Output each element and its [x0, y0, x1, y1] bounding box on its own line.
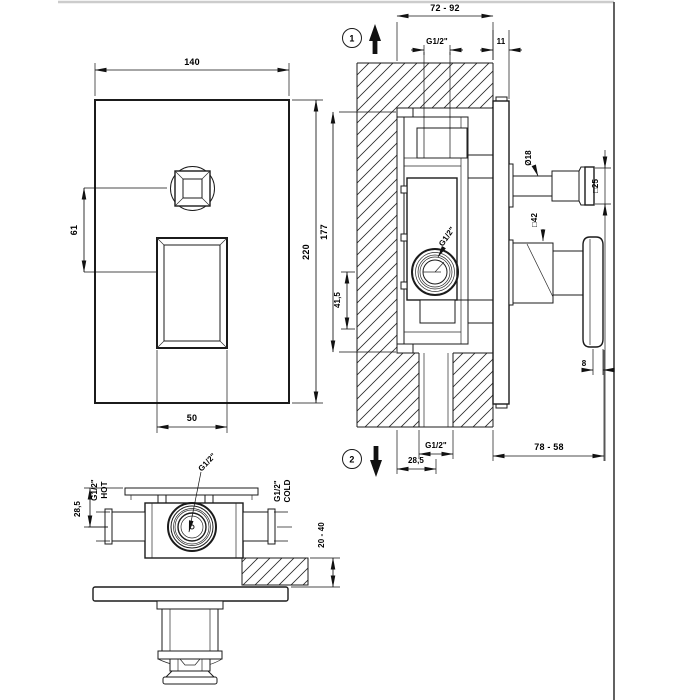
- dim-inlet-offset-section: 28,5: [397, 430, 436, 474]
- dim-front-height: 220: [292, 100, 323, 403]
- svg-text:78 - 58: 78 - 58: [534, 442, 563, 452]
- front-view: 140 220 61 50: [69, 57, 323, 433]
- lever-handle-front: [157, 238, 227, 348]
- arrow-up-icon: [369, 24, 381, 54]
- svg-text:G1/2": G1/2": [426, 37, 448, 46]
- dim-stem-diameter: Ø18: [524, 150, 538, 176]
- svg-text:41,5: 41,5: [333, 292, 342, 308]
- dim-outlet-offset: 41,5: [333, 272, 355, 329]
- svg-text:177: 177: [319, 224, 329, 240]
- trim-plate-top-view: [93, 587, 288, 601]
- trim-plate-section: [493, 97, 509, 408]
- marker-2-label: 2: [349, 455, 354, 465]
- svg-text:HOT: HOT: [100, 481, 109, 498]
- lever-handle-section: [509, 237, 603, 347]
- box-flange-top: [125, 488, 258, 503]
- drawing-sheet: 140 220 61 50: [0, 0, 700, 700]
- dim-front-width: 140: [95, 57, 289, 96]
- top-outlet-port: [417, 128, 467, 158]
- dim-depth-range-top: 72 - 92: [397, 3, 493, 61]
- svg-text:COLD: COLD: [283, 479, 292, 502]
- svg-text:□25: □25: [591, 179, 600, 193]
- dim-outlet-bottom: G1/2": [419, 430, 453, 459]
- svg-text:G1/2": G1/2": [90, 479, 99, 501]
- dim-paddle-thickness: 8: [582, 349, 614, 375]
- dim-label-50: 50: [187, 413, 197, 423]
- svg-text:11: 11: [497, 37, 506, 46]
- svg-text:28,5: 28,5: [73, 501, 82, 517]
- diverter-button-section: [509, 164, 594, 207]
- svg-text:72 - 92: 72 - 92: [430, 3, 459, 13]
- section-view: 1 2 72 - 92 G1/2" 11 177: [319, 3, 614, 477]
- svg-text:G1/2": G1/2": [273, 480, 282, 502]
- label-cold-inlet: G1/2" COLD: [273, 479, 292, 541]
- dim-label-61: 61: [69, 225, 79, 235]
- inlet-pipe-cold: [243, 509, 292, 544]
- technical-drawing: 140 220 61 50: [0, 0, 700, 700]
- valve-body-top: [145, 503, 243, 558]
- diverter-button-front: [171, 167, 215, 211]
- bottom-view: 28,5 G1/2" HOT G1/2" COLD G1/2" 20 - 40: [73, 451, 340, 684]
- arrow-down-icon: [370, 446, 382, 477]
- svg-text:G1/2": G1/2": [197, 451, 218, 473]
- dim-base-square: □42: [530, 213, 543, 241]
- dim-label-220: 220: [301, 244, 311, 260]
- svg-text:20 - 40: 20 - 40: [317, 522, 326, 548]
- marker-2: 2: [343, 446, 383, 477]
- svg-text:G1/2": G1/2": [425, 441, 447, 450]
- svg-text:Ø18: Ø18: [524, 150, 533, 166]
- svg-text:28,5: 28,5: [408, 456, 424, 465]
- dim-outlet-top: G1/2": [411, 37, 463, 55]
- svg-text:8: 8: [582, 359, 587, 368]
- inlet-pipe-hot: [88, 509, 145, 544]
- svg-text:□42: □42: [530, 213, 539, 227]
- wall-section-bottom: [242, 558, 308, 585]
- lever-handle-top-view: [157, 601, 223, 684]
- marker-1-label: 1: [349, 34, 354, 44]
- dim-label-140: 140: [184, 57, 200, 67]
- marker-1: 1: [343, 24, 382, 54]
